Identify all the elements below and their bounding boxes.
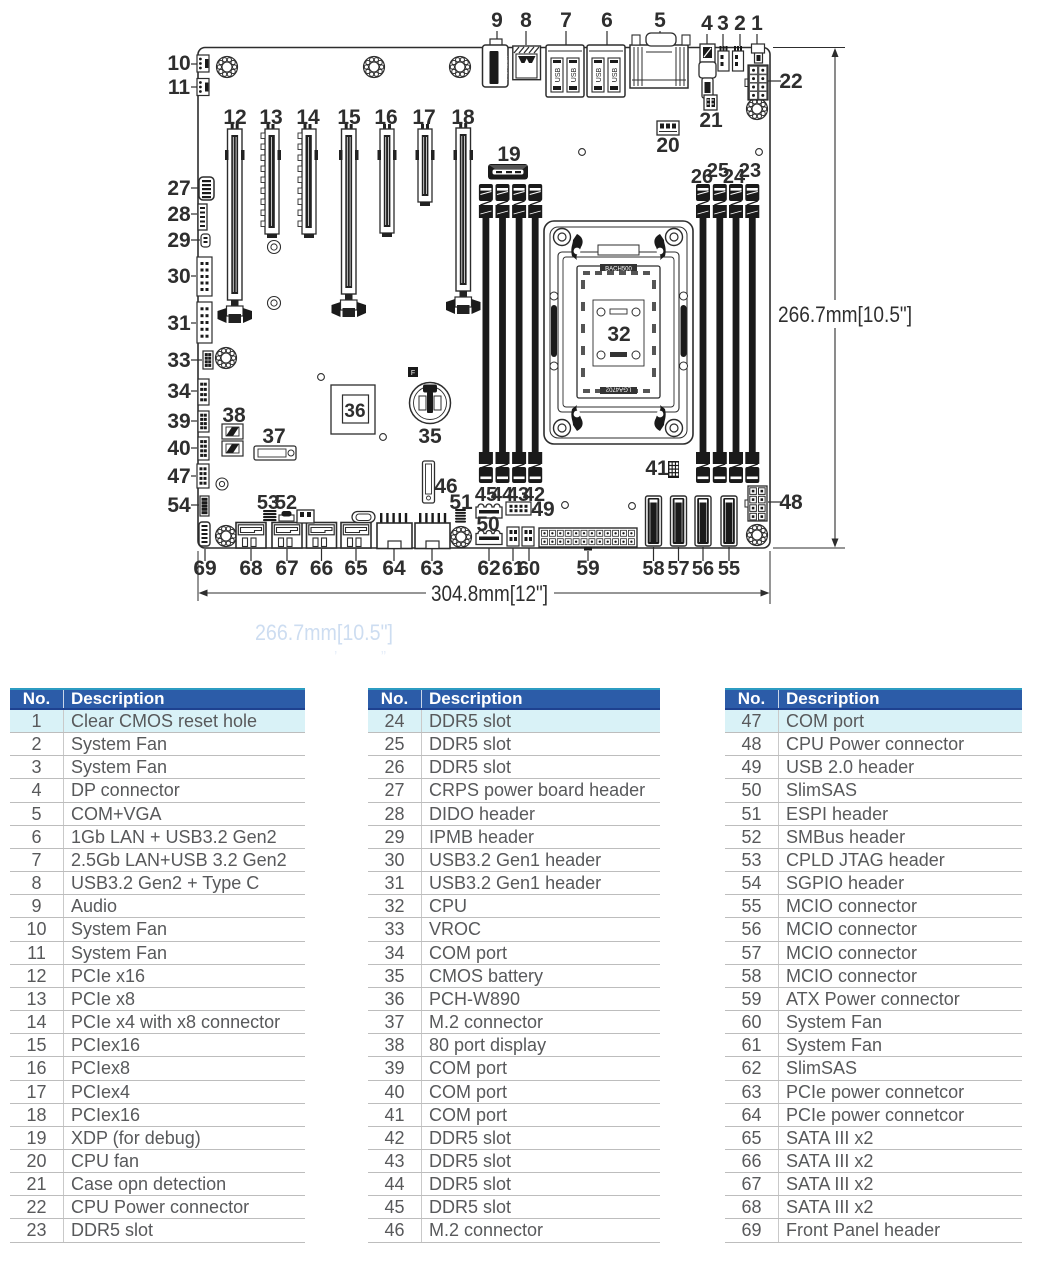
svg-text:4: 4 [701,12,713,35]
svg-text:USB: USB [555,67,562,82]
svg-text:USB: USB [612,67,619,82]
svg-text:10: 10 [167,52,190,75]
svg-text:27: 27 [167,177,190,200]
svg-text:13: 13 [259,106,282,129]
svg-text:7: 7 [560,9,572,32]
svg-text:17: 17 [412,106,435,129]
svg-text:19: 19 [497,143,520,166]
svg-text:18: 18 [451,106,475,129]
svg-text:15: 15 [337,106,361,129]
svg-text:12: 12 [223,106,246,129]
svg-text:55: 55 [718,558,740,580]
svg-text:60: 60 [518,558,540,580]
svg-text:’: ’ [334,648,337,665]
svg-text:LGA4702: LGA4702 [605,386,631,392]
svg-text:28: 28 [167,203,191,226]
svg-text:38: 38 [222,404,246,427]
svg-text:47: 47 [167,465,190,488]
svg-text:54: 54 [167,494,191,517]
svg-text:22: 22 [779,70,802,93]
svg-text:58: 58 [642,558,664,580]
svg-text:30: 30 [167,265,190,288]
svg-text:52: 52 [275,492,297,514]
svg-text:32: 32 [607,323,630,346]
svg-text:6: 6 [601,9,613,32]
svg-text:USB: USB [571,67,578,82]
svg-text:BACH500: BACH500 [605,267,632,273]
svg-text:2: 2 [734,12,746,35]
svg-text:34: 34 [167,380,191,403]
svg-text:11: 11 [168,76,191,99]
svg-text:31: 31 [167,312,191,335]
svg-text:51: 51 [449,491,473,514]
svg-text:56: 56 [692,558,714,580]
svg-text:41: 41 [645,457,669,480]
svg-text:35: 35 [418,425,442,448]
svg-text:PIONEER: PIONEER [504,56,510,81]
svg-text:266.7mm[10.5"]: 266.7mm[10.5"] [778,302,912,327]
svg-text:F: F [411,370,415,377]
svg-text:266.7mm[10.5"]: 266.7mm[10.5"] [255,620,393,645]
svg-text:29: 29 [167,229,190,252]
svg-text:23: 23 [739,160,761,182]
svg-text:”: ” [381,648,386,665]
svg-text:16: 16 [374,106,397,129]
svg-text:33: 33 [167,349,190,372]
svg-text:9: 9 [491,9,503,32]
svg-text:14: 14 [296,106,320,129]
svg-text:8: 8 [520,9,532,32]
svg-text:20: 20 [656,134,679,157]
svg-text:5: 5 [654,9,666,32]
svg-text:39: 39 [167,410,190,433]
svg-text:57: 57 [667,558,689,580]
svg-text:304.8mm[12"]: 304.8mm[12"] [431,581,548,606]
svg-text:48: 48 [779,491,803,514]
svg-text:21: 21 [699,109,723,132]
svg-text:1: 1 [751,12,763,35]
svg-text:40: 40 [167,437,190,460]
svg-text:36: 36 [344,401,365,422]
svg-text:USB: USB [596,67,603,82]
svg-text:37: 37 [262,425,285,448]
svg-text:3: 3 [717,12,729,35]
